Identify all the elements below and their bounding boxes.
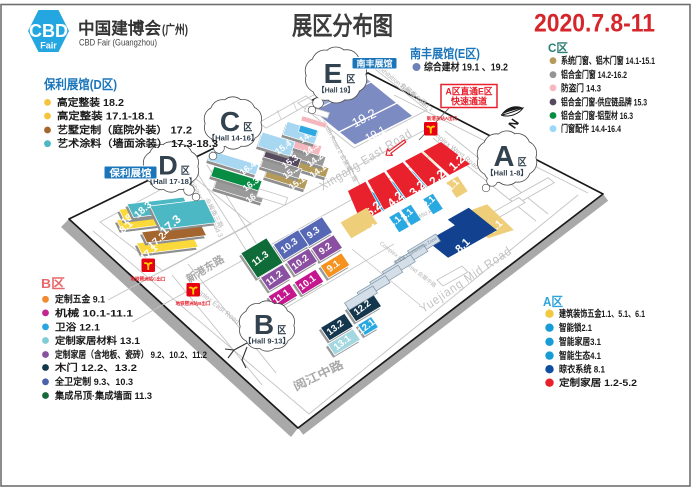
svg-text:快速通道: 快速通道: [451, 96, 487, 107]
svg-text:建筑装饰五金1.1、5.1、6.1: 建筑装饰五金1.1、5.1、6.1: [558, 308, 645, 320]
svg-text:【Hall 19】: 【Hall 19】: [318, 84, 355, 94]
svg-text:艺墅定制（庭院外装） 17.2: 艺墅定制（庭院外装） 17.2: [57, 123, 192, 136]
svg-text:【Hall 9-13】: 【Hall 9-13】: [244, 335, 290, 345]
svg-text:防盗门 14.3: 防盗门 14.3: [561, 82, 601, 94]
svg-text:集成吊顶·集成墙面 11.3: 集成吊顶·集成墙面 11.3: [54, 390, 152, 402]
svg-text:铝合金门窗-铝型材 16.3: 铝合金门窗-铝型材 16.3: [561, 110, 633, 122]
svg-text:C区: C区: [548, 41, 568, 55]
svg-text:CBD: CBD: [29, 21, 68, 41]
svg-text:高定整装 17.1-18.1: 高定整装 17.1-18.1: [57, 109, 154, 122]
svg-text:区: 区: [346, 73, 355, 85]
svg-text:门窗配件 14.4-16.4: 门窗配件 14.4-16.4: [561, 123, 622, 135]
svg-text:定制家居（含地板、瓷砖） 9.2、10.2、11.2: 定制家居（含地板、瓷砖） 9.2、10.2、11.2: [54, 349, 207, 361]
svg-text:D: D: [158, 151, 178, 181]
svg-text:智能锁2.1: 智能锁2.1: [559, 322, 593, 334]
svg-text:中国建博会: 中国建博会: [78, 18, 162, 38]
svg-text:区: 区: [181, 165, 190, 177]
svg-text:B区: B区: [41, 276, 65, 291]
svg-text:高定整装 18.2: 高定整装 18.2: [57, 96, 124, 109]
svg-text:机械 10.1-11.1: 机械 10.1-11.1: [55, 307, 134, 319]
svg-text:定制家居材料 13.1: 定制家居材料 13.1: [54, 335, 141, 347]
svg-text:保利展馆(D区): 保利展馆(D区): [43, 77, 117, 92]
svg-text:A区: A区: [543, 295, 563, 309]
svg-text:系统门窗、铝木门窗 14.1-15.1: 系统门窗、铝木门窗 14.1-15.1: [561, 55, 656, 67]
svg-text:2020.7.8-11: 2020.7.8-11: [534, 10, 655, 38]
svg-text:A区直通E区: A区直通E区: [446, 86, 493, 97]
svg-text:新港东站A出口: 新港东站A出口: [427, 115, 458, 122]
svg-text:Fair: Fair: [40, 41, 57, 51]
svg-text:智能家居3.1: 智能家居3.1: [559, 336, 602, 348]
svg-text:综合建材 19.1 、19.2: 综合建材 19.1 、19.2: [424, 60, 508, 73]
svg-text:区: 区: [518, 157, 527, 169]
svg-text:E: E: [324, 58, 343, 89]
svg-text:C: C: [220, 106, 240, 137]
svg-text:智能生态4.1: 智能生态4.1: [559, 350, 602, 362]
svg-text:晾衣系统 8.1: 晾衣系统 8.1: [559, 364, 606, 376]
svg-text:南丰展馆(E区): 南丰展馆(E区): [410, 46, 480, 61]
svg-text:全卫定制 9.3、10.3: 全卫定制 9.3、10.3: [54, 376, 133, 388]
svg-text:【Hall 1-8】: 【Hall 1-8】: [486, 168, 528, 178]
svg-text:区: 区: [243, 121, 252, 133]
svg-text:展区分布图: 展区分布图: [292, 12, 393, 41]
svg-text:地铁琶洲站C出口: 地铁琶洲站C出口: [131, 276, 166, 283]
svg-text:B: B: [254, 309, 274, 340]
svg-text:艺术涂料（墙面涂装） 17.3-18.3: 艺术涂料（墙面涂装） 17.3-18.3: [57, 137, 218, 150]
svg-text:铝合金门窗-供应链品牌 15.3: 铝合金门窗-供应链品牌 15.3: [561, 96, 647, 108]
svg-text:地铁琶洲站B出口: 地铁琶洲站B出口: [176, 300, 211, 307]
svg-text:定制家居 1.2-5.2: 定制家居 1.2-5.2: [558, 377, 637, 389]
svg-text:铝合金门窗 14.2-16.2: 铝合金门窗 14.2-16.2: [561, 69, 627, 81]
svg-text:保利展馆: 保利展馆: [108, 168, 152, 180]
svg-text:南丰展馆: 南丰展馆: [357, 59, 394, 69]
svg-text:(广州): (广州): [162, 22, 188, 37]
svg-text:木门 12.2、13.2: 木门 12.2、13.2: [54, 362, 137, 374]
svg-text:定制五金 9.1: 定制五金 9.1: [54, 294, 106, 306]
svg-text:卫浴 12.1: 卫浴 12.1: [55, 321, 101, 333]
svg-text:CBD Fair (Guangzhou): CBD Fair (Guangzhou): [79, 38, 157, 48]
svg-text:区: 区: [277, 324, 286, 336]
